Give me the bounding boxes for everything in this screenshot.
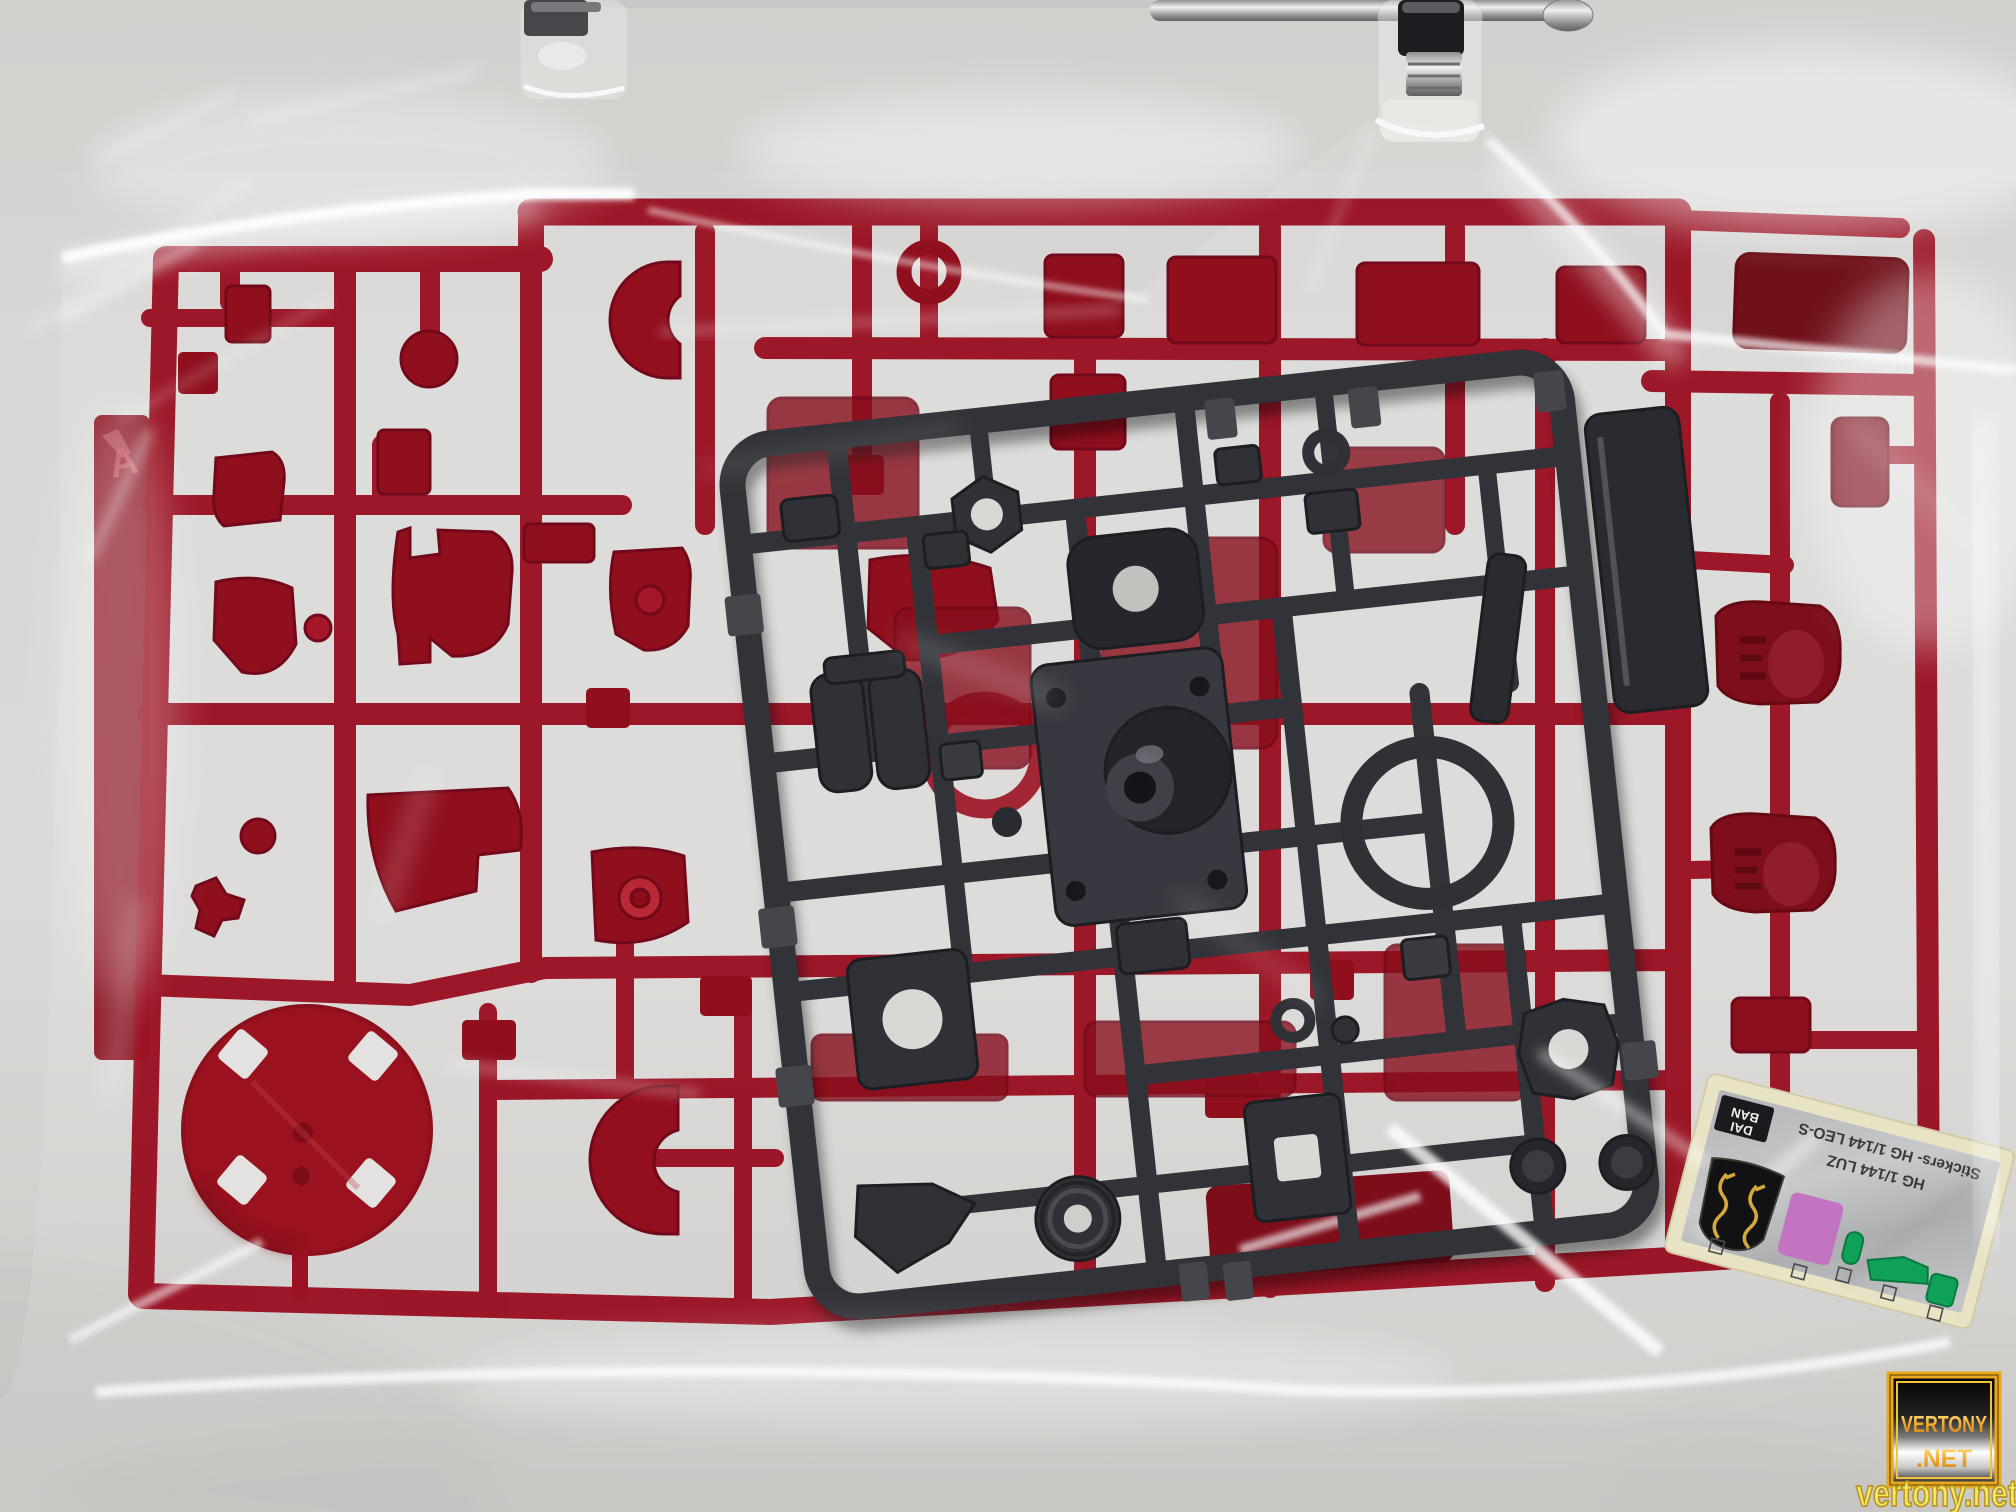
svg-text:VERTONY: VERTONY [1901,1411,1987,1437]
svg-text:.NET: .NET [1916,1445,1972,1473]
svg-text:vertony.net: vertony.net [1856,1473,2016,1512]
